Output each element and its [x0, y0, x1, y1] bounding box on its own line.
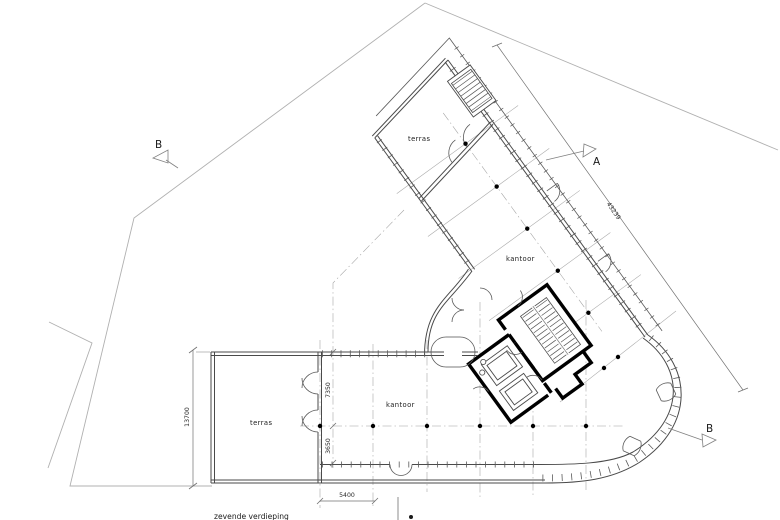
- wing-column-dots: [462, 141, 591, 316]
- entrance-wall: [428, 352, 478, 356]
- label-terras-wing: terras: [408, 135, 430, 143]
- section-b-left-label: B: [155, 139, 162, 151]
- dim-bay-depth-upper: 7350: [325, 382, 332, 398]
- section-marker-b-left: B: [153, 139, 178, 168]
- dimension-5400: 5400: [317, 492, 378, 504]
- floor-plan-page: 43239 13700 7350 3650 5400 B A B terras: [0, 0, 780, 520]
- terras-doors: [302, 372, 318, 432]
- label-terras-lower: terras: [250, 419, 272, 427]
- section-marker-b-right: B: [668, 423, 716, 447]
- dimension-7350-3650: 7350 3650: [325, 349, 336, 466]
- north-arrow: [398, 497, 413, 520]
- wing-sw-mullions: [379, 141, 471, 268]
- dim-bay-width: 5400: [339, 492, 355, 499]
- site-lot-line: [48, 322, 92, 468]
- courtyard-doors: [452, 288, 492, 322]
- projection-line: [333, 210, 404, 468]
- floor-title: zevende verdieping: [214, 512, 289, 520]
- dim-lower-wing-depth: 13700: [184, 407, 191, 427]
- section-b-right-label: B: [706, 423, 713, 435]
- dim-facade-length: 43239: [605, 201, 622, 221]
- label-kantoor-wing: kantoor: [506, 255, 535, 263]
- label-kantoor-lower: kantoor: [386, 401, 415, 409]
- section-marker-a: A: [546, 144, 601, 168]
- wing-end-stair: [447, 65, 496, 117]
- section-a-label: A: [593, 156, 601, 168]
- dimension-13700: 13700: [184, 347, 210, 489]
- diagonal-wing: [298, 29, 675, 441]
- floor-plan-canvas: 43239 13700 7350 3650 5400 B A B terras: [0, 0, 780, 520]
- grid-lines: [300, 210, 625, 508]
- courtyard-curve: [425, 269, 473, 356]
- curved-facade-door-2: [621, 435, 644, 457]
- wing-facade-doors: [547, 183, 616, 272]
- dim-bay-depth-lower: 3650: [325, 438, 332, 454]
- core: [443, 276, 607, 438]
